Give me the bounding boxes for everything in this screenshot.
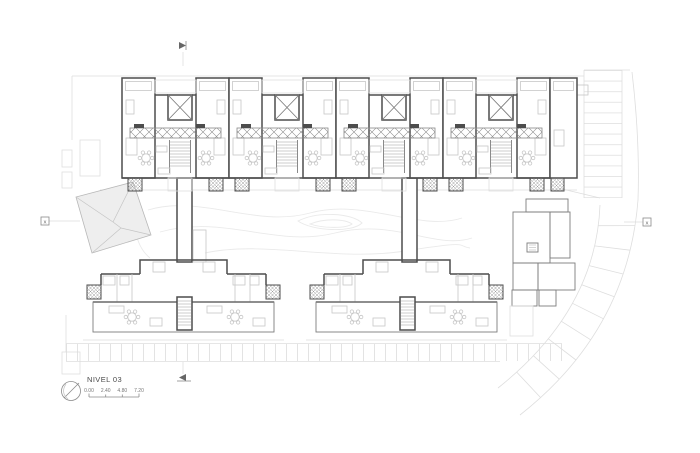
scale-label-0: 0.00: [84, 388, 94, 394]
title-block: NIVEL 03 0.00 2.40 4.80 7.20: [62, 375, 145, 401]
floor-plan-sheet: X X NIVEL 03 0.00 2.40 4.80 7.20: [0, 0, 700, 453]
apartment-module-2: [229, 78, 336, 191]
top-apartment-row: [122, 78, 577, 191]
bottom-apartment-block-a: [83, 260, 284, 340]
scale-bar: 0.00 2.40 4.80 7.20: [84, 388, 144, 397]
section-marker-bottom: [177, 362, 191, 381]
scale-label-1: 2.40: [101, 388, 111, 394]
parking-strip-bottom: [66, 344, 562, 363]
floor-plan-drawing: X X NIVEL 03 0.00 2.40 4.80 7.20: [0, 0, 700, 453]
section-marker-left-label: X: [43, 220, 46, 225]
section-marker-top: [179, 41, 186, 66]
section-marker-right: X: [624, 218, 651, 226]
parking-curve-right: [498, 200, 638, 415]
apartment-module-3: [336, 78, 443, 191]
courtyard-contours: [118, 192, 472, 258]
apartment-module-1: [122, 78, 229, 191]
level-title: NIVEL 03: [87, 375, 122, 384]
parking-strip-right: [577, 70, 622, 198]
section-marker-left: X: [41, 217, 80, 225]
bottom-apartment-block-b: [306, 260, 507, 340]
faceted-roof-pavilion: [76, 182, 151, 253]
north-arrow-icon: [62, 382, 81, 401]
apartment-module-4: [443, 78, 550, 191]
section-marker-right-label: X: [645, 221, 648, 226]
scale-label-2: 4.80: [117, 388, 127, 394]
scale-label-3: 7.20: [134, 388, 144, 394]
apartment-end-unit: [550, 78, 577, 191]
